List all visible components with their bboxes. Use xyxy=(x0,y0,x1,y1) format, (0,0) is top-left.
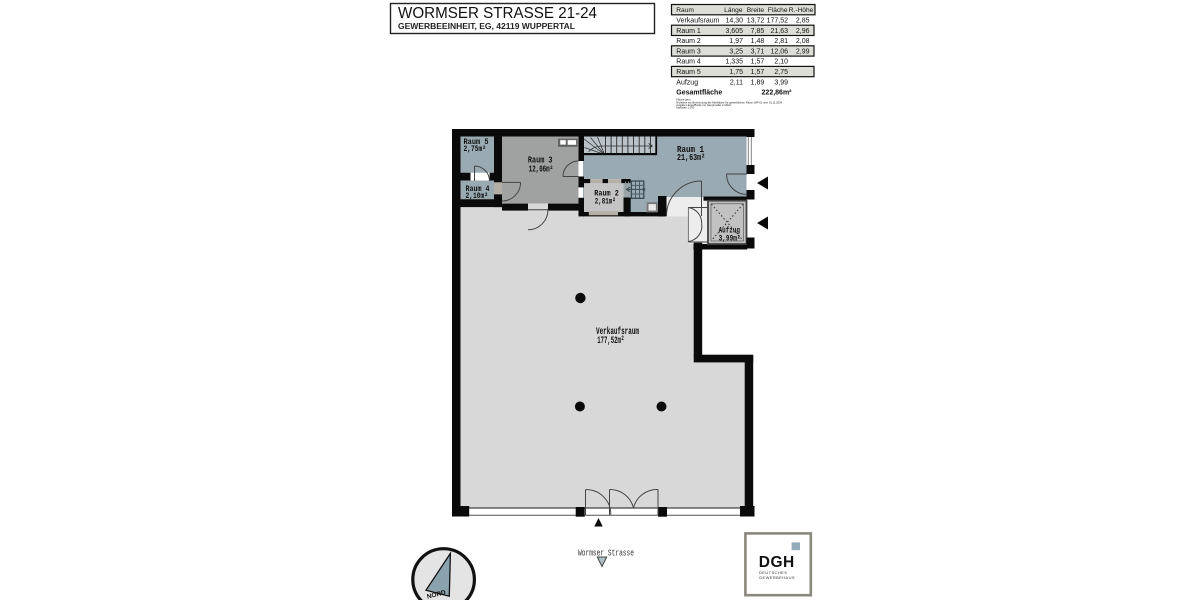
svg-text:13,72: 13,72 xyxy=(747,18,765,25)
svg-text:Raum 5: Raum 5 xyxy=(676,69,701,76)
svg-text:1,48: 1,48 xyxy=(751,38,765,45)
svg-text:3,71: 3,71 xyxy=(751,48,765,55)
svg-text:222,86m²: 222,86m² xyxy=(762,90,793,97)
svg-text:1,97: 1,97 xyxy=(729,38,743,45)
svg-text:2,08: 2,08 xyxy=(796,38,810,45)
svg-text:GEWERBEEINHEIT, EG, 42119 WUPP: GEWERBEEINHEIT, EG, 42119 WUPPERTAL xyxy=(398,21,575,31)
svg-text:1,75: 1,75 xyxy=(729,69,743,76)
svg-text:21,63m²: 21,63m² xyxy=(677,152,705,163)
svg-text:Raum: Raum xyxy=(676,7,694,14)
svg-text:Länge: Länge xyxy=(724,7,743,14)
svg-text:Gesamtfläche: Gesamtfläche xyxy=(676,90,722,97)
svg-text:7,85: 7,85 xyxy=(751,28,765,35)
svg-text:1,57: 1,57 xyxy=(751,69,765,76)
svg-text:2,11: 2,11 xyxy=(730,79,743,86)
svg-text:2,10: 2,10 xyxy=(774,59,788,66)
svg-text:Raum 3: Raum 3 xyxy=(676,48,701,55)
svg-text:1,57: 1,57 xyxy=(751,59,765,66)
svg-text:Fläche: Fläche xyxy=(768,7,788,14)
svg-text:12,06m²: 12,06m² xyxy=(529,165,553,175)
svg-text:Raum 4: Raum 4 xyxy=(676,59,701,66)
svg-text:3,605: 3,605 xyxy=(725,28,743,35)
svg-text:2,85: 2,85 xyxy=(796,18,810,25)
svg-text:1,335: 1,335 xyxy=(725,59,743,66)
svg-text:Verkaufsraum: Verkaufsraum xyxy=(676,18,719,25)
svg-text:Breite: Breite xyxy=(747,7,765,14)
svg-text:2,81m²: 2,81m² xyxy=(595,196,616,206)
svg-text:2,99: 2,99 xyxy=(796,48,810,55)
svg-text:177,52m²: 177,52m² xyxy=(597,335,624,347)
svg-text:2,96: 2,96 xyxy=(796,28,810,35)
svg-text:3,99m²: 3,99m² xyxy=(719,235,741,244)
svg-text:177,52: 177,52 xyxy=(767,18,789,25)
svg-text:GEWERBEHAUS: GEWERBEHAUS xyxy=(759,575,795,580)
svg-text:3,25: 3,25 xyxy=(729,48,743,55)
svg-text:2,81: 2,81 xyxy=(774,38,788,45)
svg-text:Aufzug: Aufzug xyxy=(676,79,698,86)
svg-text:1,89: 1,89 xyxy=(751,79,765,86)
svg-text:14,30: 14,30 xyxy=(725,18,743,25)
svg-text:2,10m²: 2,10m² xyxy=(466,192,489,201)
svg-text:2,75m²: 2,75m² xyxy=(464,145,487,154)
svg-text:Maßstab 1:100: Maßstab 1:100 xyxy=(676,106,694,110)
svg-text:WORMSER STRASSE 21-24: WORMSER STRASSE 21-24 xyxy=(398,5,597,22)
svg-text:Raum 2: Raum 2 xyxy=(676,38,701,45)
svg-text:2,75: 2,75 xyxy=(774,69,788,76)
svg-text:Raum 1: Raum 1 xyxy=(676,28,701,35)
svg-text:21,63: 21,63 xyxy=(770,28,788,35)
svg-text:R.-Höhe: R.-Höhe xyxy=(789,7,814,14)
svg-text:12,06: 12,06 xyxy=(770,48,788,55)
svg-text:3,99: 3,99 xyxy=(774,79,788,86)
svg-text:DGH: DGH xyxy=(759,554,795,571)
